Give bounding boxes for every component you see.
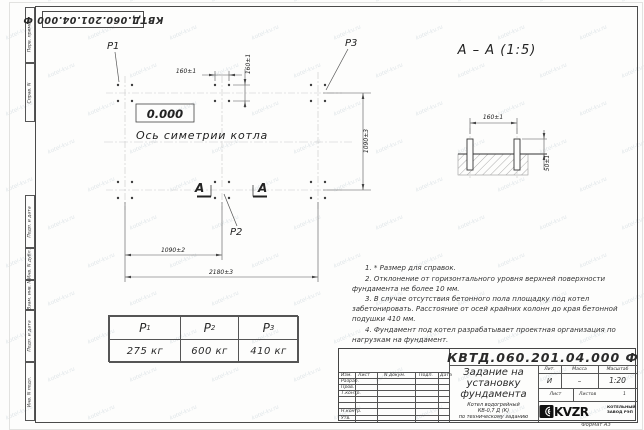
title-block: Изм. Лист N докум. Подп. Дата Разраб. Пр… (338, 348, 636, 421)
margin-cell-label: Подп. и дата (28, 206, 33, 237)
tb-sheets-value: 1 (623, 392, 626, 397)
p-symbol: P (263, 321, 270, 335)
load-point-p3-label: P3 (345, 38, 357, 49)
company-line: ЗАВОД РЭП (607, 409, 637, 414)
load-point-p1-label: P1 (107, 41, 119, 52)
loads-value-p2: 600 кг (180, 339, 239, 363)
margin-cell-sign-date-2: Подп. и дата (25, 310, 35, 362)
tb-header-docnum: N докум. (384, 373, 405, 378)
dim-total-width: 2180±3 (209, 269, 233, 276)
margin-cell-inv-orig: Инв. N подл. (25, 362, 35, 421)
tb-row-developed: Разраб. (341, 379, 359, 384)
kvzr-logo-icon (539, 404, 554, 419)
p-subscript: 3 (270, 324, 274, 332)
plan-view: P1 P3 P2 0.000 Ось симетрии котла 160±1 … (90, 28, 390, 293)
section-view: А – А (1:5) 160±1 50±1 (425, 30, 585, 185)
margin-cell-ref-no: Справ. N (25, 63, 35, 122)
tb-lit-value: И (538, 373, 561, 388)
elevation-value: 0.000 (147, 107, 183, 121)
tb-lit-label: Лит. (538, 365, 561, 373)
margin-cell-label: Взам. инв. N (28, 280, 33, 310)
kvzr-logo: KVZR (539, 402, 609, 421)
margin-cell-label: Подп. и дата (28, 320, 33, 351)
tb-row-tcontrol: Т.контр. (341, 391, 361, 396)
tb-row-checked: Пров. (341, 385, 354, 390)
tb-doc-title: Задание на установку фундамента (449, 367, 538, 401)
section-dim-bolt-spacing: 160±1 (483, 114, 503, 121)
margin-cell-inv-dup: Инв. N дубл. (25, 248, 35, 280)
tb-row-approved: Утв. (341, 416, 351, 421)
margin-cell-label: Инв. N подл. (28, 376, 33, 406)
tb-row-ncontrol: Н.контр. (341, 409, 362, 414)
p-symbol: P (139, 321, 146, 335)
tb-header-list: Лист (358, 373, 370, 378)
dim-bolt-spacing-v: 160±1 (245, 54, 252, 74)
dim-bolt-spacing-h: 160±1 (176, 68, 196, 75)
dim-row-spacing: 1090±3 (363, 129, 370, 153)
loads-value-p3: 410 кг (238, 339, 299, 363)
loads-header-p3: P3 (238, 316, 299, 340)
tb-document-title-cell: Задание на установку фундамента Котел во… (449, 365, 538, 422)
company-name: КОТЕЛЬНЫЙ ЗАВОД РЭП (607, 404, 637, 414)
tb-scale-label: Масштаб (598, 365, 637, 373)
loads-table: P1 P2 P3 275 кг 600 кг 410 кг (108, 315, 298, 362)
tb-sheet-label: Лист (538, 388, 573, 401)
p-subscript: 2 (211, 324, 215, 332)
section-title: А – А (1:5) (457, 43, 537, 58)
loads-header-p1: P1 (109, 316, 181, 340)
format-note: Формат А3 (556, 422, 636, 428)
p-symbol: P (204, 321, 211, 335)
dim-col-spacing: 1090±2 (161, 247, 185, 254)
section-cut-marks (197, 185, 267, 197)
tb-product-line: по техническому заданию (459, 414, 529, 420)
margin-cell-label: Инв. N дубл. (28, 249, 33, 279)
symmetry-axis-label: Ось симетрии котла (136, 129, 268, 142)
tb-mass-label: Масса (561, 365, 598, 373)
note-item: 1. * Размер для справок. (352, 264, 636, 274)
margin-cell-sign-date-1: Подп. и дата (25, 195, 35, 248)
section-letter-left: А (194, 181, 204, 195)
tb-mass-value: – (561, 373, 598, 388)
tb-scale-value: 1:20 (598, 373, 637, 388)
section-letter-right: А (257, 181, 267, 195)
note-item: 4. Фундамент под котел разрабатывает про… (352, 326, 636, 346)
section-dim-bolt-height: 50±1 (544, 155, 551, 171)
margin-cell-label: Справ. N (28, 82, 33, 103)
load-point-p2-label: P2 (230, 227, 242, 238)
note-item: 3. В случае отсутствия бетонного пола пл… (352, 295, 636, 324)
notes-block: 1. * Размер для справок. 2. Отклонение о… (352, 264, 636, 346)
corner-designation-stamp: КВТД.060.201.04.000 Ф (42, 11, 144, 28)
tb-designation: КВТД.060.201.04.000 Ф (449, 349, 637, 365)
drawing-sheet: kotel-kv.rukotel-kv.rukotel-kv.rukotel-k… (0, 0, 644, 430)
tb-sheets-label: Листов (579, 392, 596, 397)
tb-header-sign: Подп. (419, 373, 433, 378)
loads-value-p1: 275 кг (109, 339, 181, 363)
margin-cell-repl-inv: Взам. инв. N (25, 280, 35, 310)
loads-header-p2: P2 (180, 316, 239, 340)
tb-header-izm: Изм. (341, 373, 352, 378)
corner-designation-text: КВТД.060.201.04.000 Ф (23, 14, 163, 25)
p-subscript: 1 (146, 324, 150, 332)
kvzr-logo-text: KVZR (554, 405, 589, 419)
note-item: 2. Отклонение от горизонтального уровня … (352, 275, 636, 295)
